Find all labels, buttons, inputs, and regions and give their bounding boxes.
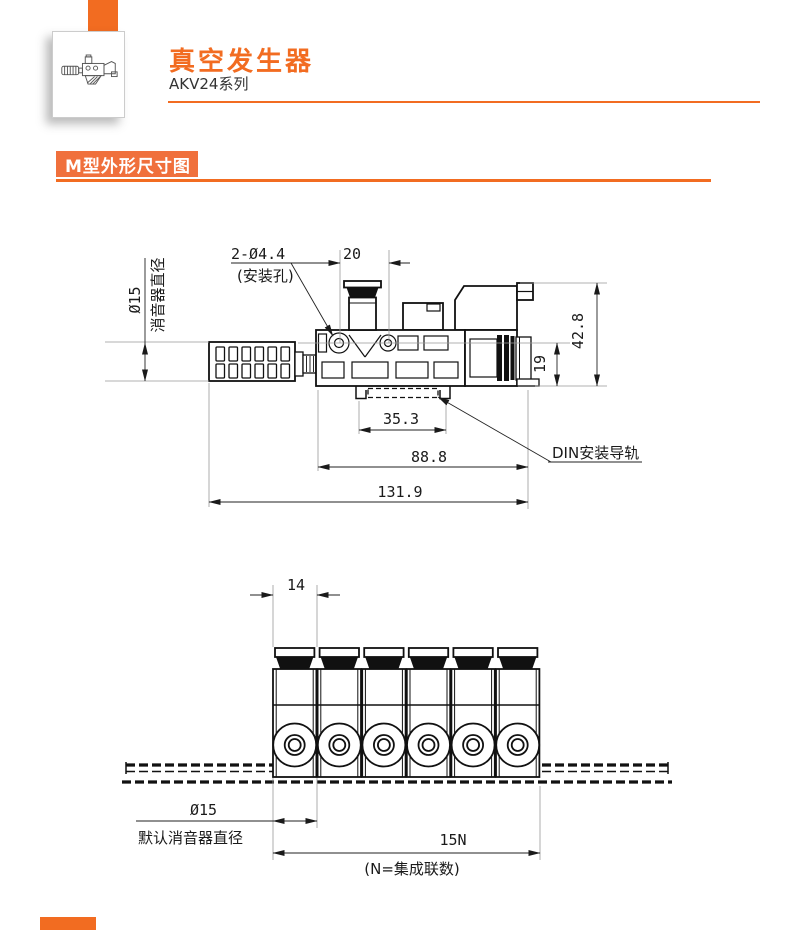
- muffler-dia-text: Ø15: [126, 286, 144, 313]
- dim-15n-note: (N=集成联数): [364, 860, 460, 878]
- din-rail-callout: DIN安装导轨: [438, 397, 642, 462]
- dim-20-text: 20: [343, 245, 361, 263]
- dim-manifold-total: 15N (N=集成联数): [273, 786, 540, 878]
- din-rail-label: DIN安装导轨: [552, 444, 639, 462]
- dim-height-total: 42.8: [569, 283, 597, 386]
- dim-428-text: 42.8: [569, 313, 587, 349]
- front-view-drawing: 14 Ø15 默认消音器直径 15N (N=集成联数): [122, 576, 672, 878]
- footer-orange-bar: [40, 917, 96, 930]
- datasheet-page: 真空发生器 AKV24系列 M型外形尺寸图: [0, 0, 800, 930]
- din-rail-clip: [356, 386, 450, 399]
- dimension-drawings: Ø15 消音器直径 2-Ø4.4 (安装孔) 20 42.8 19: [0, 0, 800, 930]
- dim-muffler-diameter: Ø15 消音器直径: [126, 257, 167, 381]
- valve-body-side-view: [316, 281, 539, 386]
- dim-15n-text: 15N: [439, 831, 466, 849]
- dim-1319-text: 131.9: [377, 483, 422, 501]
- dim-total-length: 131.9: [209, 483, 528, 502]
- side-view-drawing: Ø15 消音器直径 2-Ø4.4 (安装孔) 20 42.8 19: [105, 245, 642, 509]
- muffler-dia-front-text: Ø15: [190, 801, 217, 819]
- muffler-label-text: 消音器直径: [149, 257, 167, 332]
- dim-353-text: 35.3: [383, 410, 419, 428]
- mount-holes-label: 2-Ø4.4: [231, 245, 285, 263]
- dim-14-text: 14: [287, 576, 305, 594]
- dim-19-text: 19: [531, 355, 549, 373]
- dim-body-length: 88.8: [318, 448, 528, 467]
- manifold-modules: [273, 648, 539, 777]
- dim-module-width: 14: [250, 576, 340, 647]
- dim-mount-holes: 2-Ø4.4 (安装孔) 20: [231, 245, 410, 336]
- dim-888-text: 88.8: [411, 448, 447, 466]
- mount-holes-note: (安装孔): [237, 267, 294, 285]
- dim-default-muffler: Ø15 默认消音器直径: [136, 778, 317, 860]
- muffler-side-view: [209, 342, 316, 381]
- dim-rail-width: 35.3: [359, 410, 446, 430]
- muffler-note-text: 默认消音器直径: [138, 829, 243, 847]
